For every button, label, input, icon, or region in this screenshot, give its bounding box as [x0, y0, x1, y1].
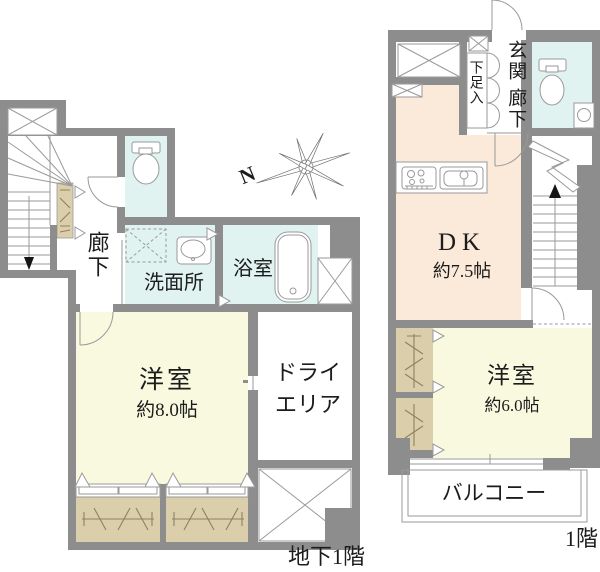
b1-washroom-label: 洗面所 — [136, 272, 212, 294]
entrance-door-arc — [492, 0, 522, 30]
toilet-door-arc — [88, 177, 118, 207]
kitchen-counter — [396, 162, 487, 193]
bathtub — [275, 232, 311, 302]
b1-bedroom-size: 約8.0帖 — [112, 400, 222, 421]
b1-bath-label: 浴室 — [226, 258, 280, 280]
elevator-shaft — [8, 108, 57, 135]
b1-corridor-label: 廊下 — [84, 231, 109, 279]
f1-corridor-label: 廊下 — [505, 88, 526, 130]
f1-floor-label: 1階 — [520, 527, 598, 552]
bedroom-door-arc — [532, 288, 564, 320]
b1-dry-area-label-1: ドライ — [266, 361, 350, 386]
compass-star — [256, 132, 351, 200]
stairs-up-arrow — [549, 184, 561, 198]
hand-basin — [574, 103, 594, 128]
f1-entrance-label: 玄関 — [505, 40, 526, 82]
f1-bedroom-size: 約6.0帖 — [458, 396, 566, 415]
basement-stairs — [8, 136, 85, 270]
b1-floor-label: 地下1階 — [225, 545, 365, 570]
dry-area-void — [259, 469, 352, 542]
f1-dk-label: DK — [412, 229, 512, 257]
f1-balcony-label: バルコニー — [418, 482, 570, 506]
f1-shoe-cabinet-label: 下足入 — [467, 60, 483, 105]
floor-plan-page: 廊下 洗面所 浴室 洋室 約8.0帖 ドライ エリア 地下1階 玄関 廊下 下足… — [0, 0, 600, 572]
f1-dk-size: 約7.5帖 — [412, 261, 512, 281]
closet-door-marker — [75, 186, 85, 198]
f1-bedroom-label: 洋室 — [458, 363, 566, 389]
shoe-cabinet-doors — [487, 53, 500, 128]
b1-dry-area-label-2: エリア — [266, 393, 350, 418]
stair-break-symbol — [528, 141, 580, 192]
b1-bedroom-label: 洋室 — [112, 367, 222, 395]
